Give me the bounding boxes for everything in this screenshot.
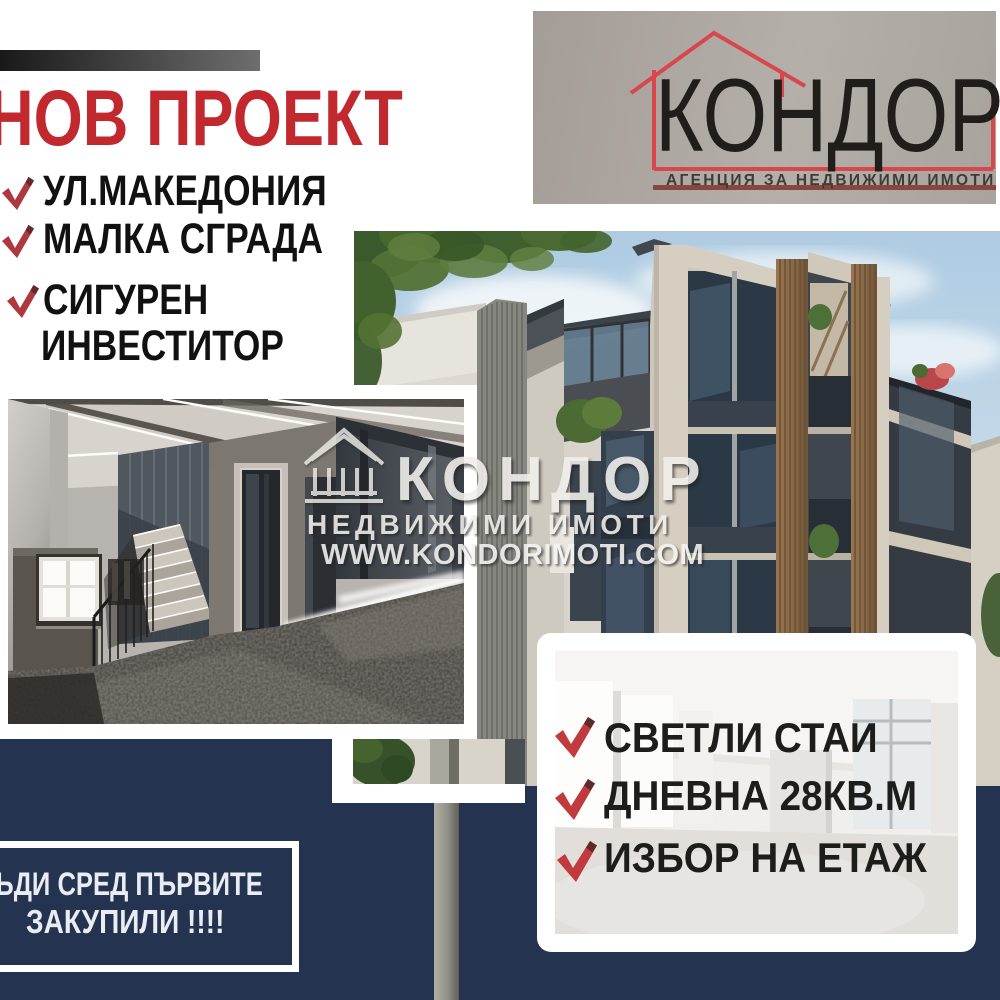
svg-text:КОНДОР: КОНДОР — [396, 445, 709, 514]
svg-text:НЕДВИЖИМИ ИМОТИ: НЕДВИЖИМИ ИМОТИ — [307, 509, 673, 540]
svg-text:WWW.KONDORIMOTI.COM: WWW.KONDORIMOTI.COM — [321, 539, 704, 571]
